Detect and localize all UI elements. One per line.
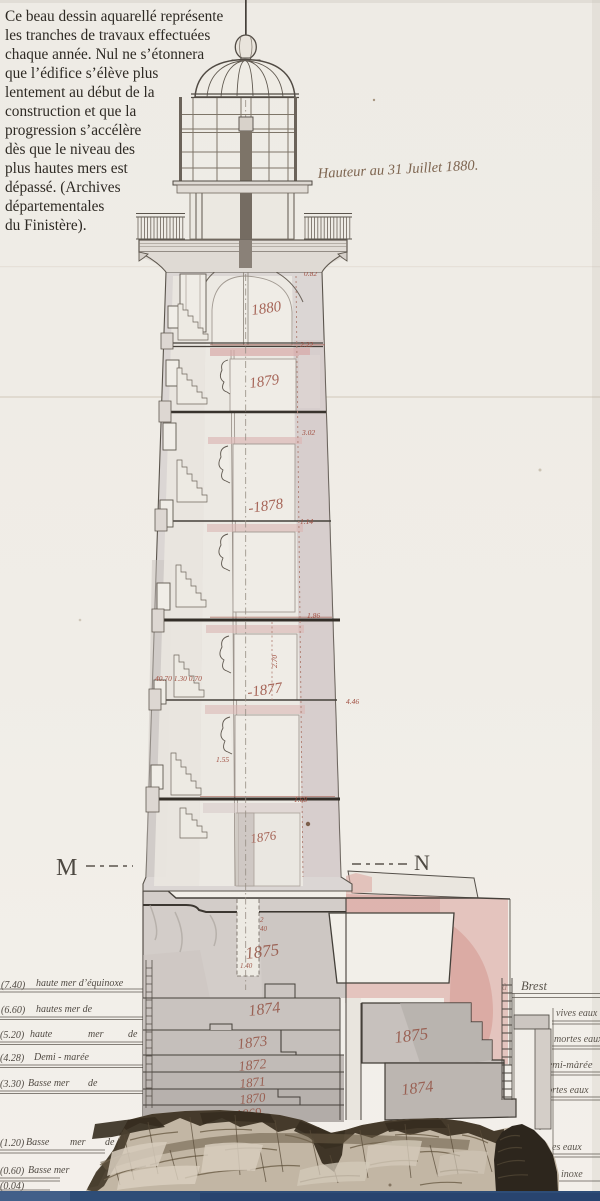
svg-text:1871: 1871 <box>239 1073 266 1091</box>
svg-text:Ce beau dessin aquarellé repré: Ce beau dessin aquarellé représente <box>5 8 224 25</box>
svg-text:Basse mer: Basse mer <box>28 1078 69 1089</box>
svg-text:1.55: 1.55 <box>216 755 229 764</box>
svg-text:N: N <box>414 850 430 875</box>
svg-text:40: 40 <box>260 925 268 933</box>
svg-text:mortes eaux: mortes eaux <box>554 1034 600 1045</box>
svg-text:1.86: 1.86 <box>307 611 320 620</box>
svg-text:3.02: 3.02 <box>301 428 315 437</box>
svg-text:es eaux: es eaux <box>552 1142 582 1153</box>
svg-text:chaque année. Nul ne s’étonner: chaque année. Nul ne s’étonnera <box>5 46 204 63</box>
svg-text:Basse mer: Basse mer <box>28 1165 69 1176</box>
svg-text:(0.60): (0.60) <box>0 1166 25 1177</box>
svg-text:départementales: départementales <box>5 198 104 215</box>
svg-text:mer: mer <box>70 1137 86 1148</box>
svg-text:dépassé. (Archives: dépassé. (Archives <box>5 179 121 196</box>
svg-text:inoxe: inoxe <box>561 1169 583 1180</box>
svg-text:2.70: 2.70 <box>270 655 279 668</box>
svg-text:Demi - marée: Demi - marée <box>33 1052 90 1063</box>
svg-text:(6.60): (6.60) <box>1 1005 26 1016</box>
svg-text:1.40: 1.40 <box>240 962 253 970</box>
svg-text:(5.20): (5.20) <box>0 1030 25 1041</box>
svg-text:Basse: Basse <box>26 1137 50 1148</box>
svg-text:de: de <box>128 1029 138 1040</box>
svg-text:(7.40): (7.40) <box>1 980 26 991</box>
svg-text:haute: haute <box>30 1029 53 1040</box>
svg-text:M: M <box>56 855 77 881</box>
svg-text:Brest: Brest <box>521 979 547 993</box>
svg-text:dès que le niveau des: dès que le niveau des <box>5 141 135 158</box>
svg-text:construction et que la: construction et que la <box>5 103 136 120</box>
svg-text:4.46: 4.46 <box>346 697 359 706</box>
svg-text:(0.04): (0.04) <box>0 1181 25 1192</box>
svg-text:du Finistère).: du Finistère). <box>5 217 87 234</box>
svg-text:40.70 1.30 0.70: 40.70 1.30 0.70 <box>155 674 202 683</box>
svg-text:de: de <box>88 1078 98 1089</box>
svg-text:1.14: 1.14 <box>300 517 313 526</box>
svg-text:haute mer d’équinoxe: haute mer d’équinoxe <box>36 978 124 989</box>
svg-text:que l’édifice s’élève plus: que l’édifice s’élève plus <box>5 65 158 82</box>
svg-text:progression s’accélère: progression s’accélère <box>5 122 142 139</box>
svg-text:les tranches de travaux effect: les tranches de travaux effectuées <box>5 27 210 44</box>
svg-text:(3.30): (3.30) <box>0 1079 25 1090</box>
svg-text:vives eaux: vives eaux <box>556 1008 598 1019</box>
svg-text:plus hautes mers est: plus hautes mers est <box>5 160 129 177</box>
svg-text:mer: mer <box>88 1029 104 1040</box>
svg-text:1.68: 1.68 <box>294 795 307 804</box>
svg-text:lentement au début de la: lentement au début de la <box>5 84 155 101</box>
svg-text:hautes mer de: hautes mer de <box>36 1004 93 1015</box>
svg-text:2.22: 2.22 <box>300 340 313 349</box>
svg-text:2: 2 <box>260 916 264 924</box>
svg-text:de: de <box>105 1137 115 1148</box>
svg-text:(4.28): (4.28) <box>0 1053 25 1064</box>
svg-text:(1.20): (1.20) <box>0 1138 25 1149</box>
